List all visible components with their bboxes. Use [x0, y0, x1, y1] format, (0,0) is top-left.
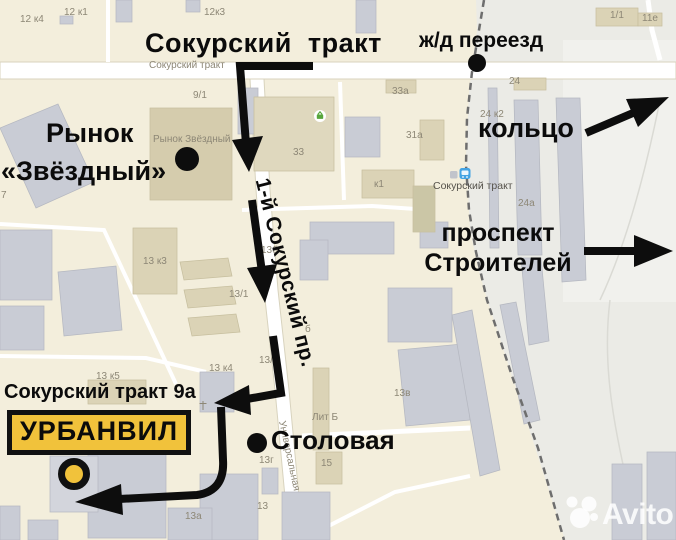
railway-crossing-dot [468, 54, 486, 72]
annotation-main-road: Сокурский тракт [145, 29, 382, 57]
company-name-box: УРБАНВИЛ [7, 410, 191, 455]
destination-marker [62, 462, 87, 487]
annotation-market-line1: Рынок [46, 119, 133, 147]
annotation-canteen: Столовая [271, 427, 395, 454]
avito-logo-icon [552, 488, 600, 536]
prospekt-line2: Строителей [424, 249, 571, 277]
annotation-ring: кольцо [478, 114, 574, 142]
annotation-market-line2: «Звёздный» [1, 157, 166, 185]
annotation-prospekt: проспектСтроителей [412, 219, 584, 278]
ring-arrowhead [626, 97, 669, 127]
canteen-dot [247, 433, 267, 453]
prospekt-line1: проспект [442, 219, 555, 247]
market-dot [175, 147, 199, 171]
prospekt-arrowhead [634, 235, 673, 267]
avito-watermark: Avito [552, 488, 676, 538]
annotation-address: Сокурский тракт 9а [4, 382, 196, 403]
avito-wordmark: Avito [602, 500, 673, 530]
map-canvas: 12 к4 12 к1 12к3 Сокурский тракт 1/1 11е… [0, 0, 676, 540]
annotation-railway-crossing: ж/д переезд [419, 30, 543, 52]
